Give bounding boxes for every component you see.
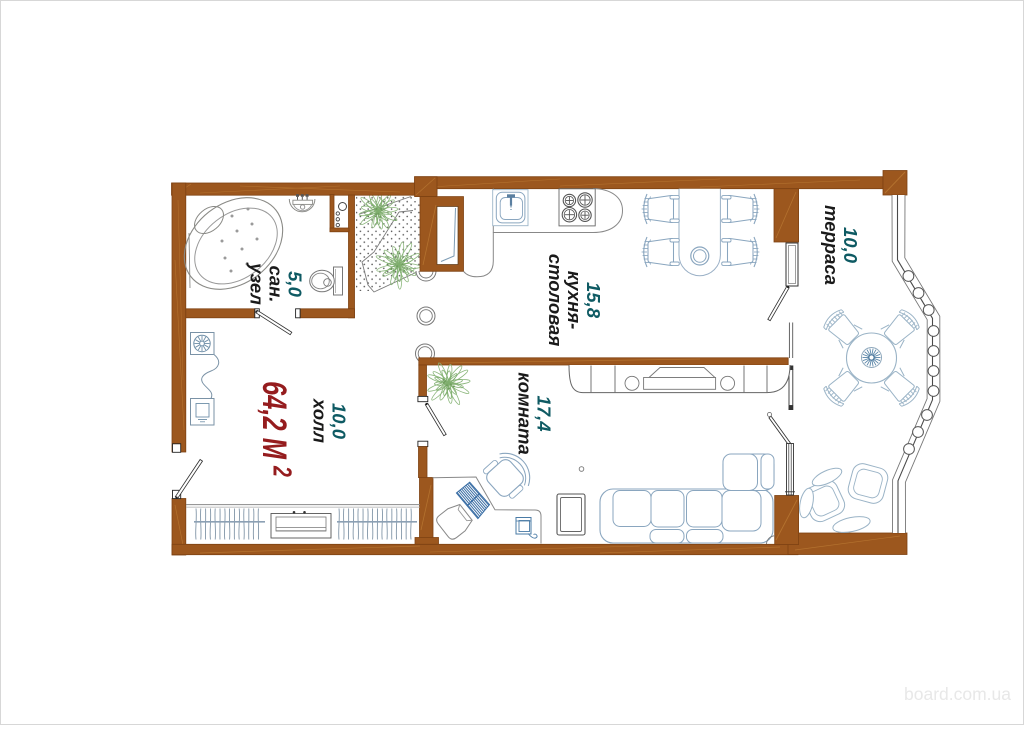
svg-text:10,0холл: 10,0холл [310, 398, 350, 444]
svg-text:64,2 М 2: 64,2 М 2 [255, 381, 297, 477]
svg-text:board.com.ua: board.com.ua [904, 684, 1011, 704]
